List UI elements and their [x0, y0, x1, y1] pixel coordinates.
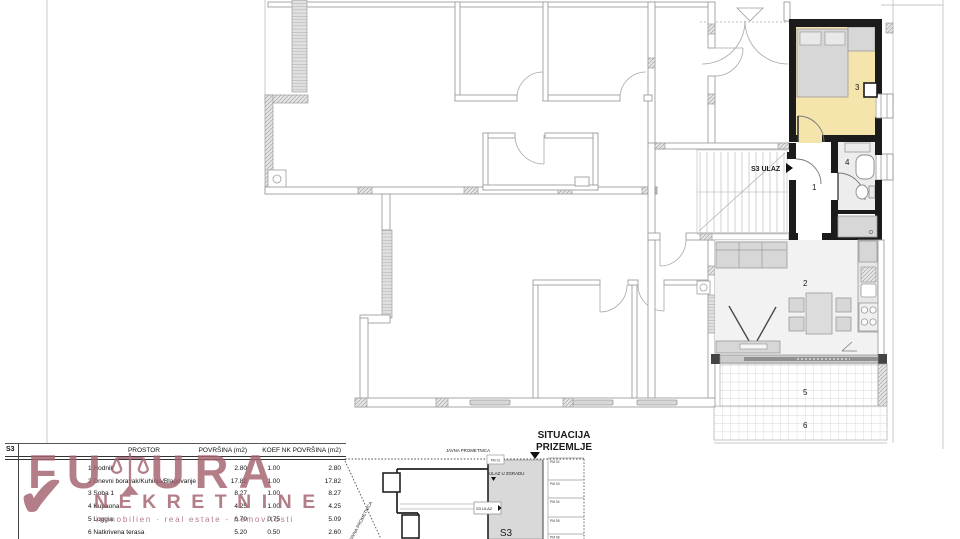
room-number-4: 4	[845, 158, 850, 167]
dining-table	[806, 293, 832, 334]
chair	[836, 317, 851, 331]
room-number-1: 1	[812, 183, 817, 192]
fridge	[859, 241, 877, 262]
room-number-2: 2	[803, 279, 808, 288]
row-povrsina: 2.80	[165, 465, 247, 472]
parking-label-02: PM 02	[550, 460, 560, 464]
floorplan-page: 3 1	[0, 0, 960, 539]
entrance-door-leaf	[787, 152, 796, 159]
chair	[789, 317, 804, 331]
row-nk: 8.27	[280, 490, 341, 497]
row-koef: 1.00	[247, 490, 280, 497]
situation-s3-entrance-label: S3 ULAZ	[476, 506, 493, 511]
wardrobe	[848, 27, 875, 51]
building-entrance-label: ULAZ U ZGRADU	[489, 471, 524, 476]
row-povrsina: 8.27	[165, 490, 247, 497]
sink	[861, 284, 876, 297]
entrance-triangle-marker	[737, 8, 763, 21]
header-povrsina: POVRŠINA (m2)	[165, 447, 247, 454]
road-label-diagonal: JAVNA PROMETNICA	[348, 501, 373, 539]
parking-label-03: PM 03	[550, 482, 560, 486]
row-koef: 0.75	[247, 516, 280, 523]
row-povrsina: 17.82	[165, 478, 247, 485]
row-name: 1 Hodnik	[5, 465, 165, 472]
room-number-6: 6	[803, 421, 808, 430]
row-name: 6 Natkrivena terasa	[5, 529, 165, 536]
sofa	[716, 242, 787, 268]
parking-label-04: PM 04	[550, 500, 560, 504]
unit-s3: 3 1	[711, 19, 893, 443]
table-header-row: PROSTOR POVRŠINA (m2) KOEF NK POVRŠINA (…	[5, 444, 346, 456]
room-number-5: 5	[803, 388, 808, 397]
room-2-living-kitchen: 2	[711, 240, 887, 364]
area-table: S3 PROSTOR POVRŠINA (m2) KOEF NK POVRŠIN…	[5, 443, 346, 539]
bathtub	[856, 155, 874, 179]
pillow	[825, 32, 845, 45]
room-5-loggia: 5	[720, 364, 887, 406]
stairwell	[648, 143, 789, 240]
table-row: 4 Kupaona 4.25 1.00 4.25	[5, 500, 346, 513]
header-nk: NK POVRŠINA (m2)	[280, 447, 341, 454]
row-nk: 5.09	[280, 516, 341, 523]
situation-unit-label: S3	[500, 528, 513, 539]
row-povrsina: 6.79	[165, 516, 247, 523]
row-name: 3 Soba 1	[5, 490, 165, 497]
row-nk: 17.82	[280, 478, 341, 485]
row-nk: 2.80	[280, 465, 341, 472]
toilet	[856, 185, 868, 199]
entrance-arrow-icon	[786, 163, 793, 173]
row-koef: 0.50	[247, 529, 280, 536]
row-name: 5 Loggia	[5, 516, 165, 523]
table-divider	[18, 444, 19, 539]
header-koef: KOEF	[247, 447, 280, 454]
row-koef: 1.00	[247, 478, 280, 485]
pillow	[800, 32, 821, 45]
table-row: 6 Natkrivena terasa 5.20 0.50 2.60	[5, 526, 346, 539]
row-koef: 1.00	[247, 503, 280, 510]
s3-entrance-label: S3 ULAZ	[751, 166, 781, 173]
table-row: 3 Soba 1 8.27 1.00 8.27	[5, 488, 346, 501]
room-3-bedroom: 3	[789, 19, 893, 143]
table-row: 5 Loggia 6.79 0.75 5.09	[5, 513, 346, 526]
chair	[836, 298, 851, 312]
row-povrsina: 5.20	[165, 529, 247, 536]
row-koef: 1.00	[247, 465, 280, 472]
row-name: 4 Kupaona	[5, 503, 165, 510]
vanity	[845, 143, 870, 152]
window	[876, 94, 893, 118]
parking-label-01: PM 01	[491, 459, 501, 463]
situation-title-line1: SITUACIJA	[538, 430, 591, 441]
road-label-top: JAVNA PROMETNICA	[446, 448, 490, 453]
parking-label-06: PM 06	[550, 536, 560, 539]
situation-plan: SITUACIJA PRIZEMLJE JAVNA PROMETNICA JAV…	[345, 430, 592, 539]
building-entrance-lobby	[700, 2, 790, 143]
table-row: 1 Hodnik 2.80 1.00 2.80	[5, 462, 346, 475]
row-nk: 2.60	[280, 529, 341, 536]
neighbor-unit-plan	[265, 0, 715, 407]
row-povrsina: 4.25	[165, 503, 247, 510]
header-prostor: PROSTOR	[5, 447, 165, 454]
header-rule	[5, 456, 346, 460]
room-number-3: 3	[855, 83, 860, 92]
situation-title-line2: PRIZEMLJE	[536, 442, 592, 453]
parking-label-05: PM 05	[550, 519, 560, 523]
table-unit-label: S3	[6, 446, 15, 453]
room-4-bathroom: 4	[831, 137, 893, 240]
chair	[789, 298, 804, 312]
room-6-terrace: 6	[714, 406, 887, 443]
row-nk: 4.25	[280, 503, 341, 510]
window	[876, 154, 893, 180]
north-marker-icon	[530, 452, 540, 459]
row-name: 2 Dnevni boravak/Kuhinja/Blagovanje	[5, 478, 165, 485]
parking-stalls: PM 02 PM 03 PM 04 PM 05 PM 06	[548, 458, 584, 539]
wall-shaft	[864, 83, 877, 97]
table-row: 2 Dnevni boravak/Kuhinja/Blagovanje 17.8…	[5, 475, 346, 488]
